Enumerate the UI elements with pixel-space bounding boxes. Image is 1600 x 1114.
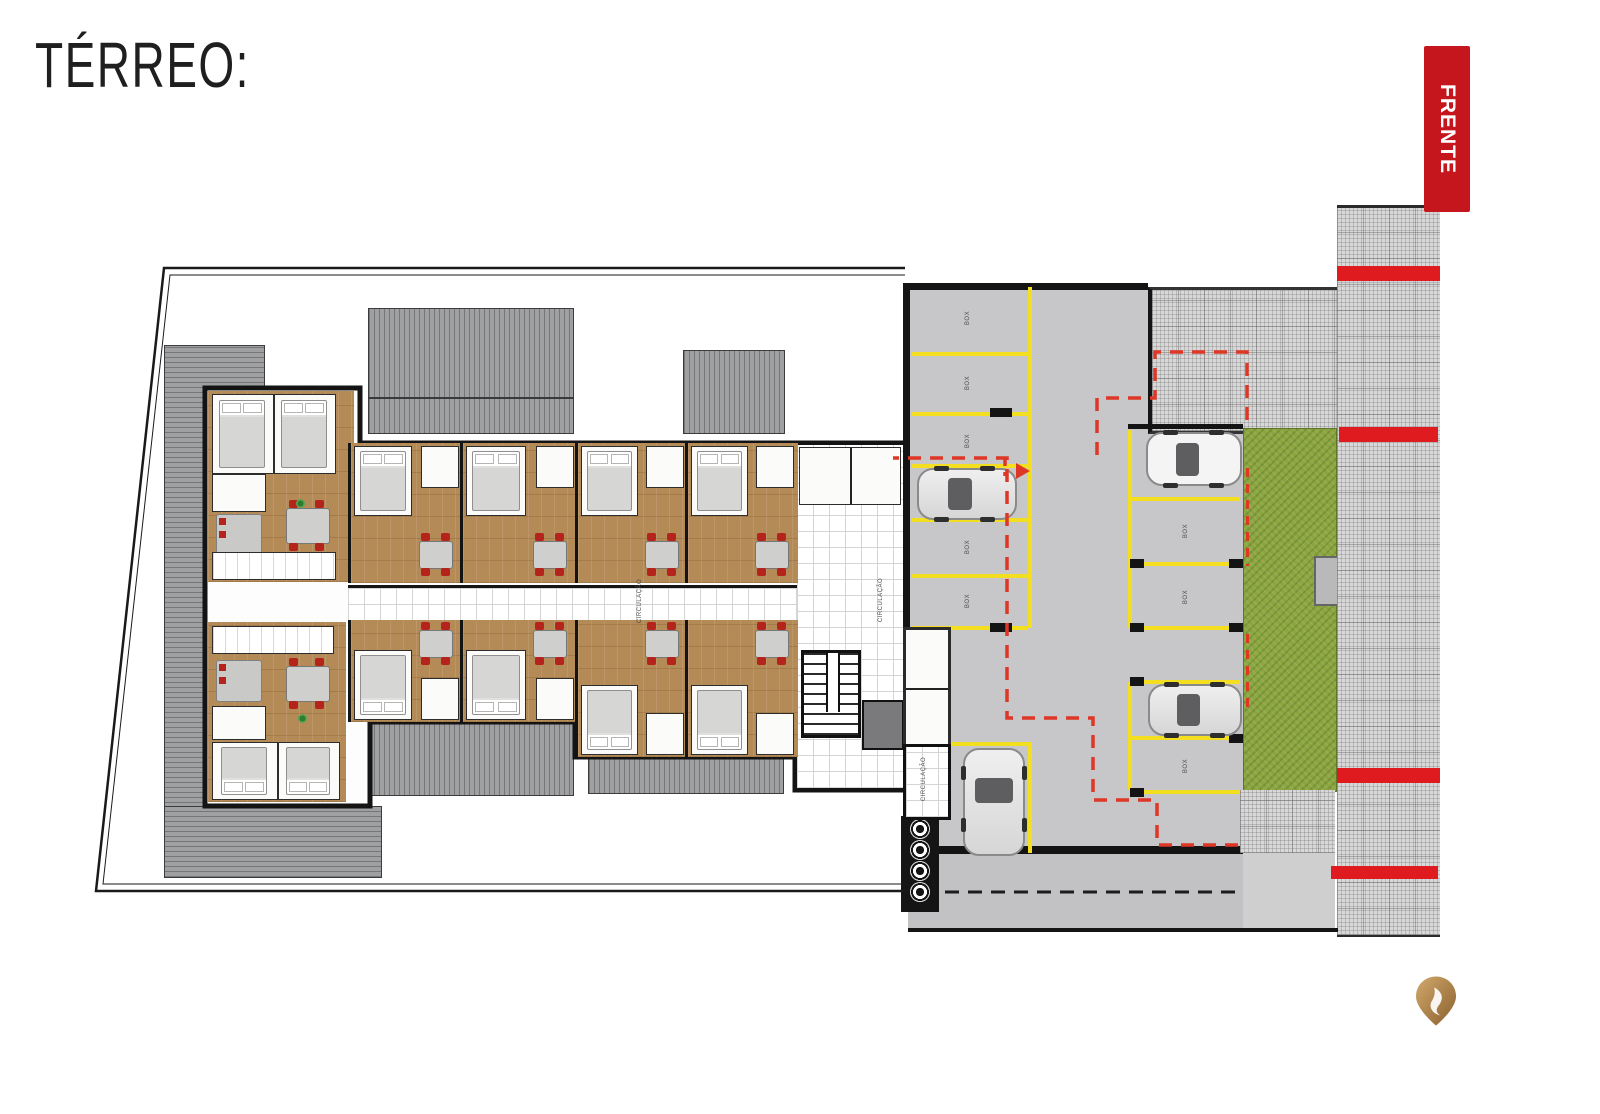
circulation-route-svg xyxy=(0,0,1600,1114)
circulation-route xyxy=(1097,352,1247,455)
circulation-route xyxy=(893,458,1238,845)
route-arrow-icon xyxy=(1016,463,1030,479)
floor-plan-canvas: BOX BOX BOX BOX BOX BOX BOX BOX xyxy=(0,0,1600,1114)
